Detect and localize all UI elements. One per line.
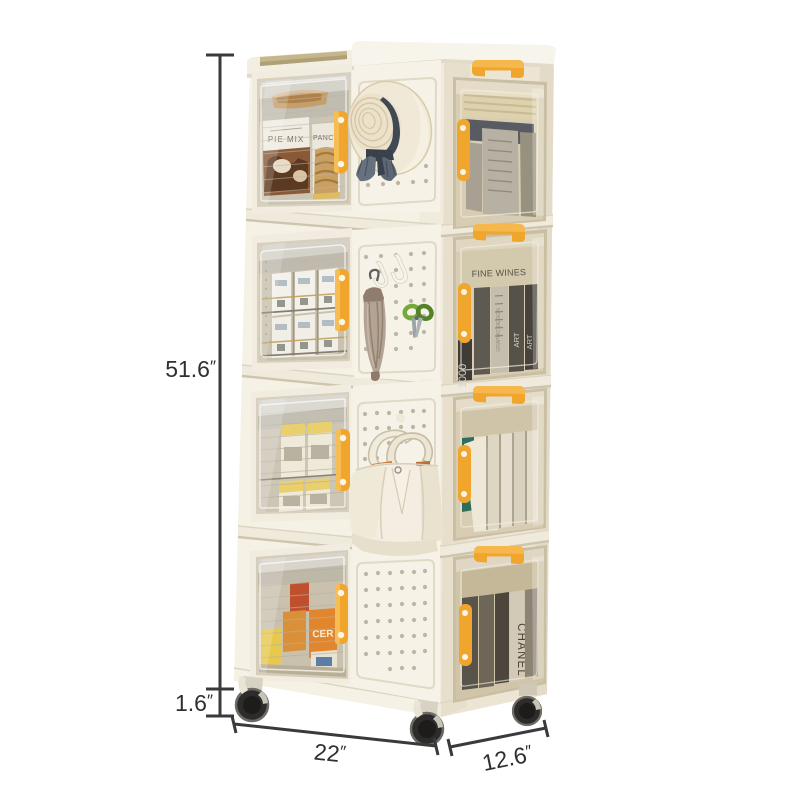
svg-text:GRAPHIC DESIGN: GRAPHIC DESIGN xyxy=(496,308,502,352)
svg-text:ART: ART xyxy=(512,332,521,347)
svg-text:1000: 1000 xyxy=(457,364,469,388)
svg-text:ART: ART xyxy=(525,334,534,349)
svg-text:51.6″: 51.6″ xyxy=(165,356,216,382)
svg-text:FINE WINES: FINE WINES xyxy=(471,267,526,279)
